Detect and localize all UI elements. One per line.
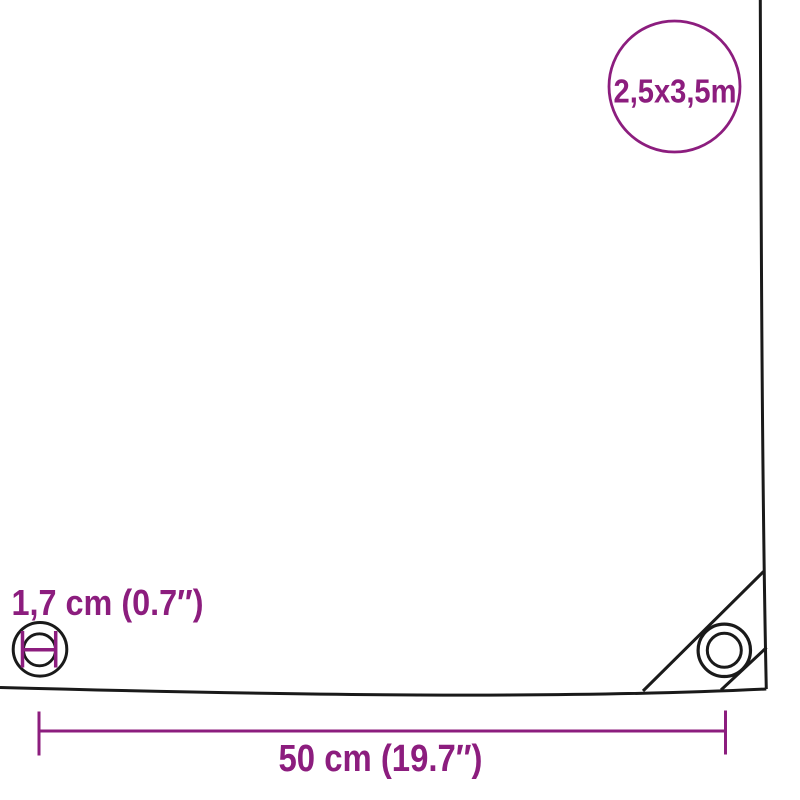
svg-text:50 cm (19.7″): 50 cm (19.7″) — [279, 738, 483, 780]
svg-text:1,7 cm (0.7″): 1,7 cm (0.7″) — [12, 582, 204, 623]
svg-text:2,5x3,5m: 2,5x3,5m — [614, 73, 737, 110]
